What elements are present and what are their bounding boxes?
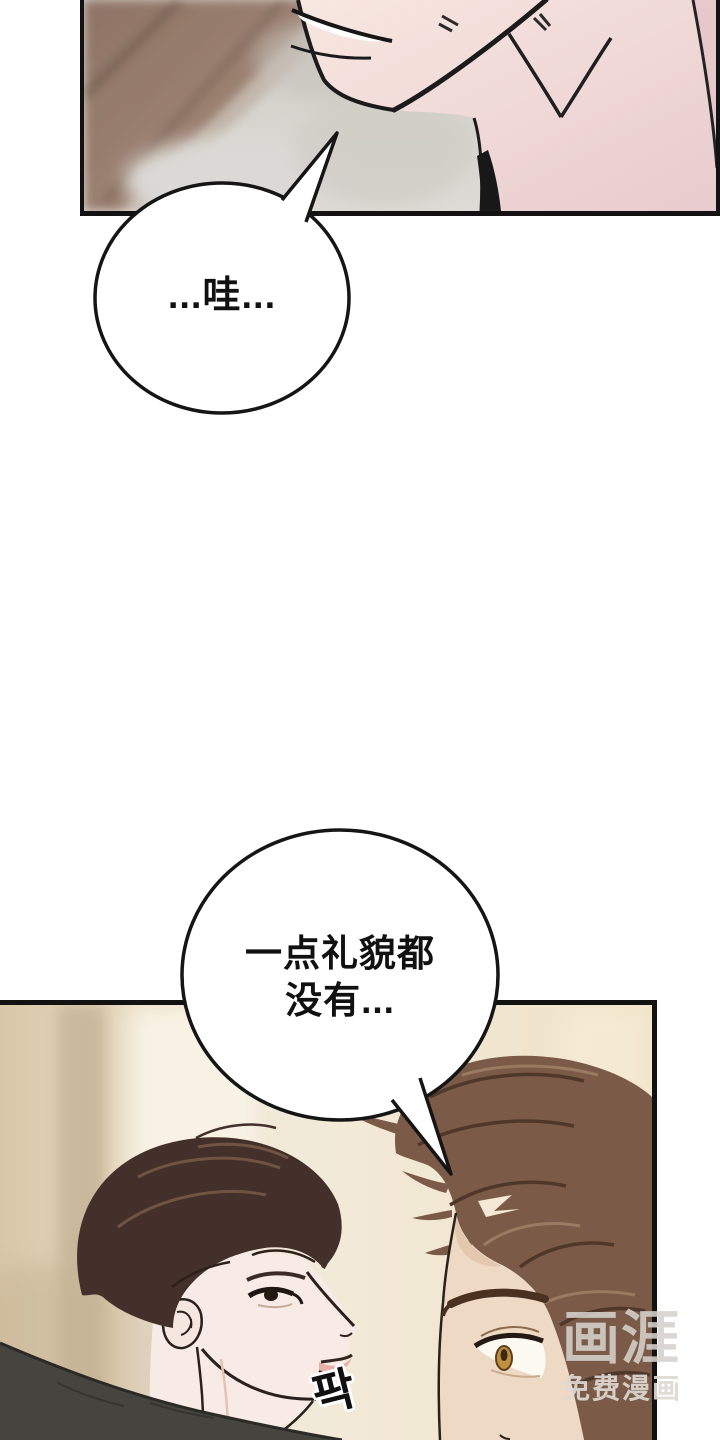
- bubble-2-line-1: 一点礼貌都: [190, 930, 490, 977]
- bubble-2-line-2: 没有...: [190, 977, 490, 1024]
- huaya-logo: 画涯: [562, 1310, 682, 1368]
- watermark-tagline: 免费漫画: [562, 1375, 682, 1403]
- bubble-2-text: 一点礼貌都 没有...: [190, 930, 490, 1024]
- eye-pupil: [501, 1349, 508, 1361]
- comic-page: ...哇... 一点礼貌都 没有... 팍 画涯 免费漫画: [0, 0, 720, 1440]
- bubble-1-text: ...哇...: [97, 272, 347, 320]
- eye-iris: [264, 1289, 278, 1301]
- watermark: 画涯 免费漫画: [562, 1310, 682, 1403]
